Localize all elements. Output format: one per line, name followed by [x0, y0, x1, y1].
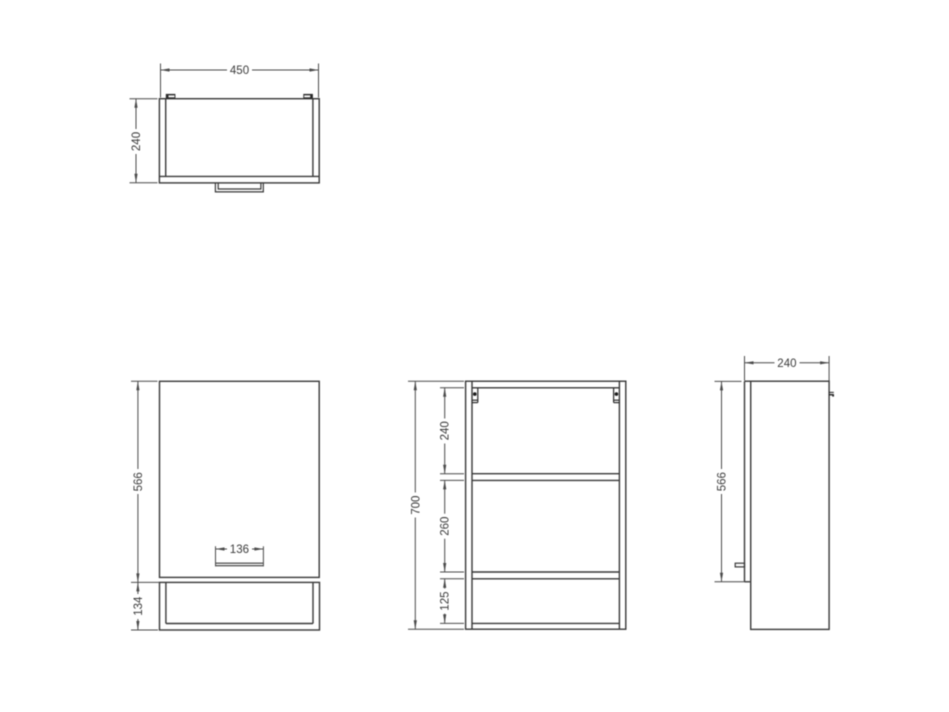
- svg-text:240: 240: [777, 358, 796, 370]
- svg-text:125: 125: [440, 592, 452, 611]
- svg-text:134: 134: [133, 596, 145, 616]
- svg-text:240: 240: [440, 421, 452, 440]
- svg-text:566: 566: [133, 472, 145, 491]
- svg-text:700: 700: [410, 496, 422, 515]
- svg-text:240: 240: [131, 132, 143, 151]
- svg-text:260: 260: [440, 517, 452, 536]
- svg-text:136: 136: [230, 544, 249, 556]
- svg-text:566: 566: [717, 472, 729, 491]
- svg-text:450: 450: [230, 65, 249, 77]
